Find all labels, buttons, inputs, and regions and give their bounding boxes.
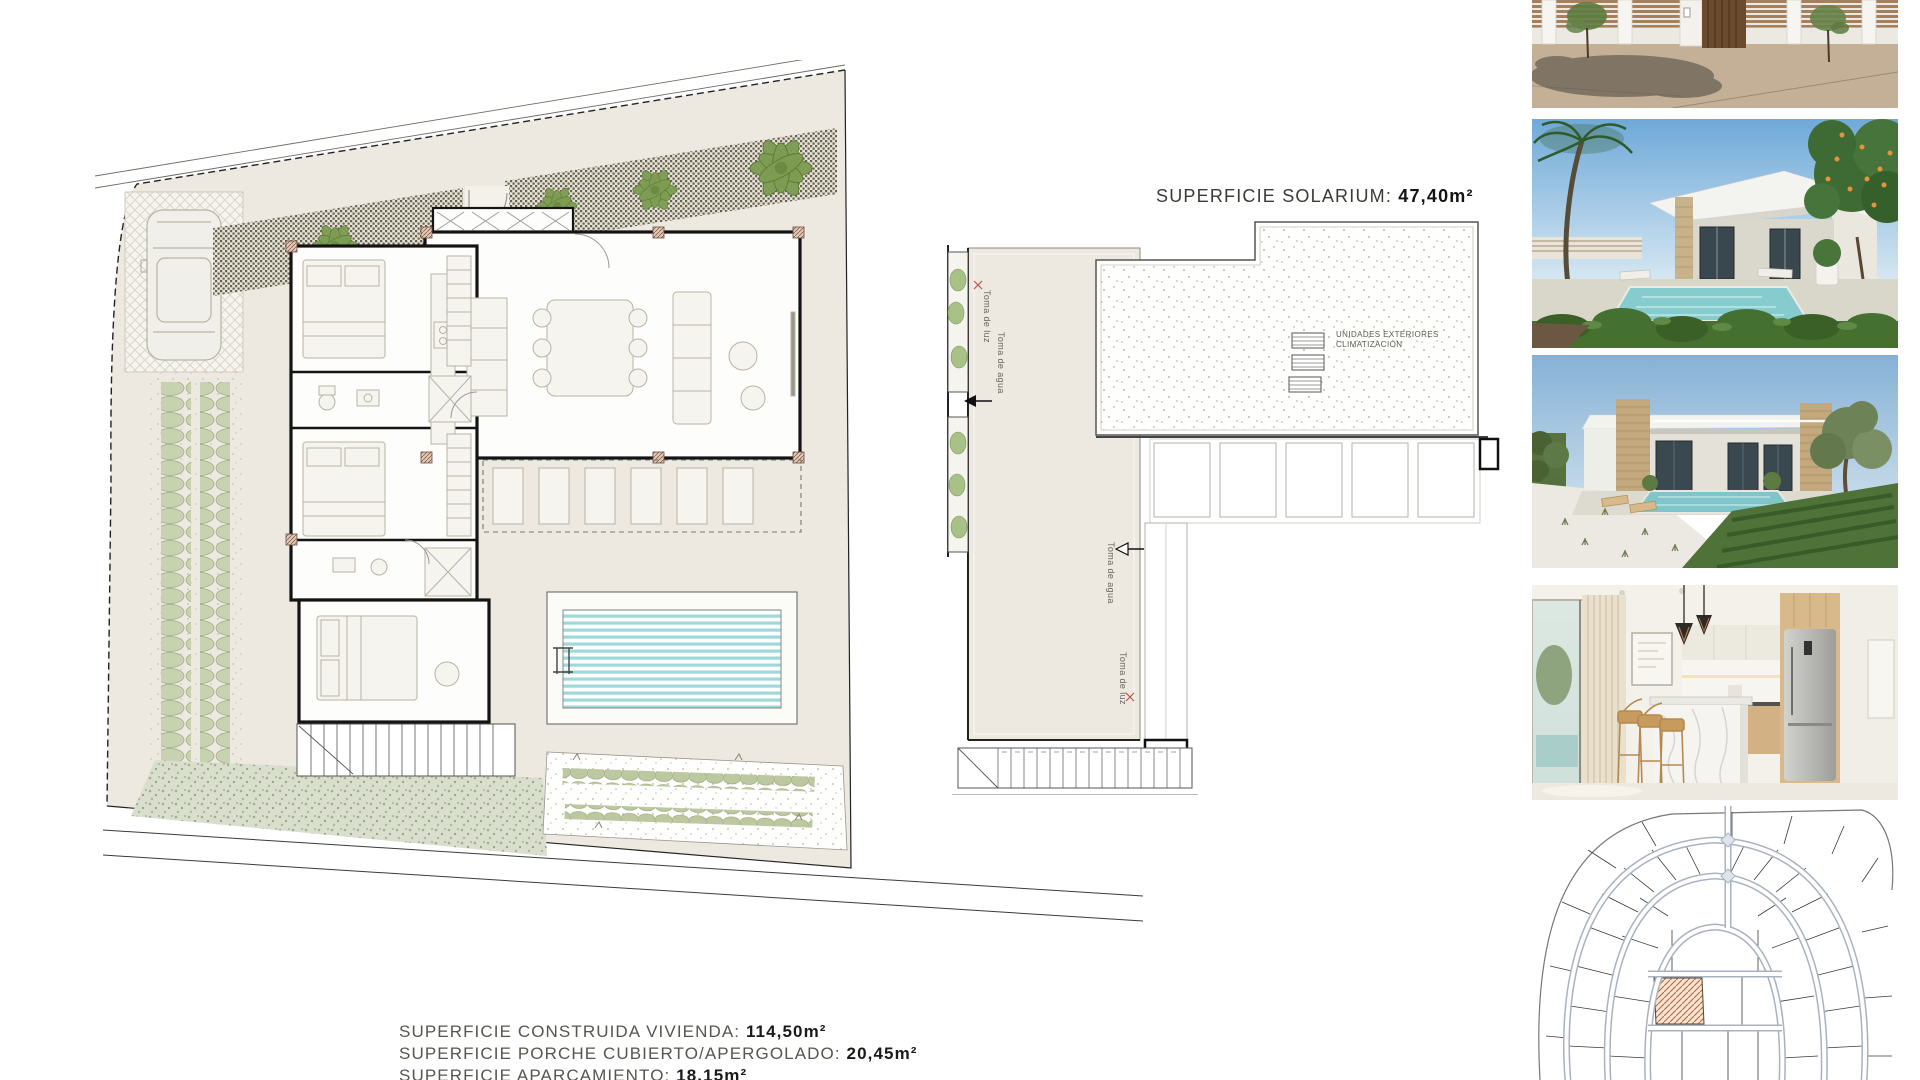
surface-line-vivienda: SUPERFICIE CONSTRUIDA VIVIENDA: 114,50m² [399, 1021, 918, 1043]
solarium-deck [1096, 222, 1478, 435]
ac-units-label: UNIDADES EXTERIORES CLIMATIZACIÓN [1336, 330, 1439, 350]
surface-line-aparcamiento: SUPERFICIE APARCAMIENTO: 18,15m² [399, 1065, 918, 1080]
kitchen-interior-render [1532, 585, 1898, 800]
fridge-cabinet [1780, 593, 1840, 788]
brochure-plan-sheet: SUPERFICIE SOLARIUM: 47,40m² UNIDADES EX… [0, 0, 1920, 1080]
bottom-planting-bed [543, 752, 847, 850]
solarium-plan-drawing [940, 185, 1500, 795]
toma-de-luz-label-left: Toma de luz [982, 290, 992, 356]
photo-villa-pool [1532, 119, 1898, 348]
photo-kitchen-interior [1532, 585, 1898, 800]
ac-units [1289, 333, 1324, 392]
solarium-title-label: SUPERFICIE SOLARIUM: [1156, 186, 1392, 206]
toma-de-luz-label-right: Toma de luz [1118, 652, 1128, 710]
planters [948, 252, 968, 552]
villa-pool-garden-render [1532, 119, 1898, 348]
highlighted-plot [1654, 978, 1704, 1024]
photo-street-entrance [1532, 0, 1898, 108]
solarium-title-value: 47,40m² [1398, 186, 1473, 206]
toma-de-agua-label-left: Toma de agua [996, 332, 1006, 416]
photo-column [1532, 0, 1898, 1080]
surface-line-porche: SUPERFICIE PORCHE CUBIERTO/APERGOLADO: 2… [399, 1043, 918, 1065]
entry-closet [433, 208, 573, 234]
pergola-slats-strip [952, 748, 1198, 795]
island [1650, 697, 1752, 797]
villa-exterior-render [1532, 355, 1898, 568]
solarium-title: SUPERFICIE SOLARIUM: 47,40m² [1156, 186, 1474, 207]
hedge-rows [147, 370, 242, 795]
swimming-pool [547, 592, 797, 724]
toma-de-agua-label-right: Toma de agua [1106, 542, 1116, 612]
urbanization-master-plan [1532, 806, 1898, 1080]
window-to-pool [1532, 600, 1584, 790]
exterior-stairs [297, 724, 515, 776]
surface-summary: SUPERFICIE CONSTRUIDA VIVIENDA: 114,50m²… [399, 1021, 918, 1080]
pergola-beams-roof [1096, 437, 1498, 766]
street-entrance-render [1532, 0, 1898, 108]
photo-master-plan [1532, 806, 1898, 1080]
photo-villa-exterior [1532, 355, 1898, 568]
